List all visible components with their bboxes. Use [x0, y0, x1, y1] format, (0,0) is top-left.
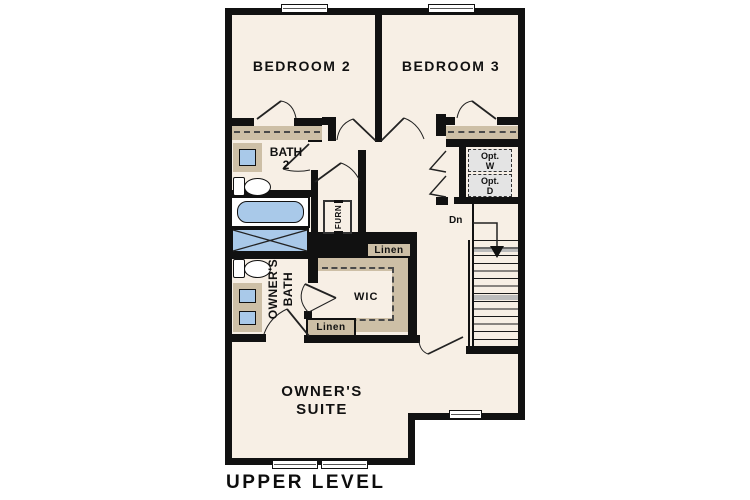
wall — [446, 117, 455, 125]
furnace-unit: FURN — [323, 200, 352, 234]
linen-lower-label: Linen — [316, 322, 345, 333]
wall — [225, 458, 415, 465]
wall — [225, 334, 266, 342]
owners-bath-label-line1: OWNER'S — [266, 259, 281, 319]
wall-below-stairs — [466, 346, 525, 354]
wall — [322, 117, 336, 125]
wall — [232, 118, 254, 126]
owners-suite-label-line1: OWNER'S — [252, 383, 392, 401]
wall — [497, 117, 521, 125]
window-mullion — [451, 414, 480, 415]
bath2-label: BATH 2 — [262, 146, 310, 172]
linen-closet-lower: Linen — [306, 318, 356, 337]
opt-dryer-line2: D — [469, 186, 511, 196]
window — [281, 4, 328, 13]
optional-washer-box: Opt. W — [468, 149, 512, 172]
owners-bath-label: OWNER'S BATH — [266, 259, 296, 319]
laundry-label: LAUNDRY — [458, 147, 469, 197]
window — [272, 460, 318, 469]
wall — [358, 150, 366, 238]
wall — [408, 413, 415, 465]
stair-rail-outer — [472, 204, 474, 346]
furnace-label: FURN — [333, 200, 342, 234]
furnace-label-wrap: FURN — [331, 202, 345, 232]
bedroom3-label: BEDROOM 3 — [391, 58, 511, 74]
window-mullion — [274, 464, 316, 465]
bedroom2-label: BEDROOM 2 — [242, 58, 362, 74]
window — [321, 460, 368, 469]
window — [449, 410, 482, 419]
window-mullion — [323, 464, 366, 465]
wall — [366, 232, 417, 242]
window — [428, 4, 475, 13]
laundry-label-wrap: LAUNDRY — [456, 142, 470, 202]
bath2-label-line2: 2 — [262, 159, 310, 172]
owners-suite-label-line2: SUITE — [252, 401, 392, 419]
owners-sink-2 — [239, 311, 256, 325]
wall — [436, 114, 446, 136]
closet-rod-dashes — [448, 131, 516, 133]
wall — [308, 258, 318, 283]
wall-bedroom-divider — [375, 14, 382, 142]
owners-bath-label-wrap: OWNER'S BATH — [264, 244, 298, 334]
linen-closet-upper: Linen — [366, 242, 412, 258]
opt-washer-line2: W — [469, 161, 511, 171]
wall — [436, 197, 448, 205]
owners-sink-1 — [239, 289, 256, 303]
wall — [328, 125, 336, 141]
stair-rail-inner — [468, 240, 470, 346]
wall-chase — [308, 232, 366, 258]
opt-dryer-line1: Opt. — [469, 176, 511, 186]
bedroom2-closet-shelf — [232, 126, 322, 140]
opt-washer-line1: Opt. — [469, 151, 511, 161]
optional-dryer-box: Opt. D — [468, 174, 512, 197]
linen-upper-label: Linen — [374, 245, 403, 256]
window-mullion — [430, 8, 473, 9]
bathtub — [237, 201, 304, 223]
plan-title: UPPER LEVEL — [226, 472, 385, 494]
bath2-toilet-bowl — [244, 178, 271, 196]
stairs-down-label: Dn — [449, 215, 462, 226]
bath2-sink — [239, 149, 256, 166]
stair-treads — [473, 240, 518, 346]
wall — [518, 8, 525, 420]
window-mullion — [283, 8, 326, 9]
closet-rod-dashes — [234, 131, 320, 133]
bedroom3-closet-shelf — [446, 126, 518, 139]
floor-plan: FURN Linen Linen Opt. W Opt. D — [0, 0, 750, 500]
owners-suite-label: OWNER'S SUITE — [252, 383, 392, 419]
exterior-notch — [415, 420, 527, 467]
wic-label: WIC — [354, 291, 378, 303]
wall — [311, 170, 318, 238]
owners-bath-label-line2: BATH — [281, 259, 296, 319]
